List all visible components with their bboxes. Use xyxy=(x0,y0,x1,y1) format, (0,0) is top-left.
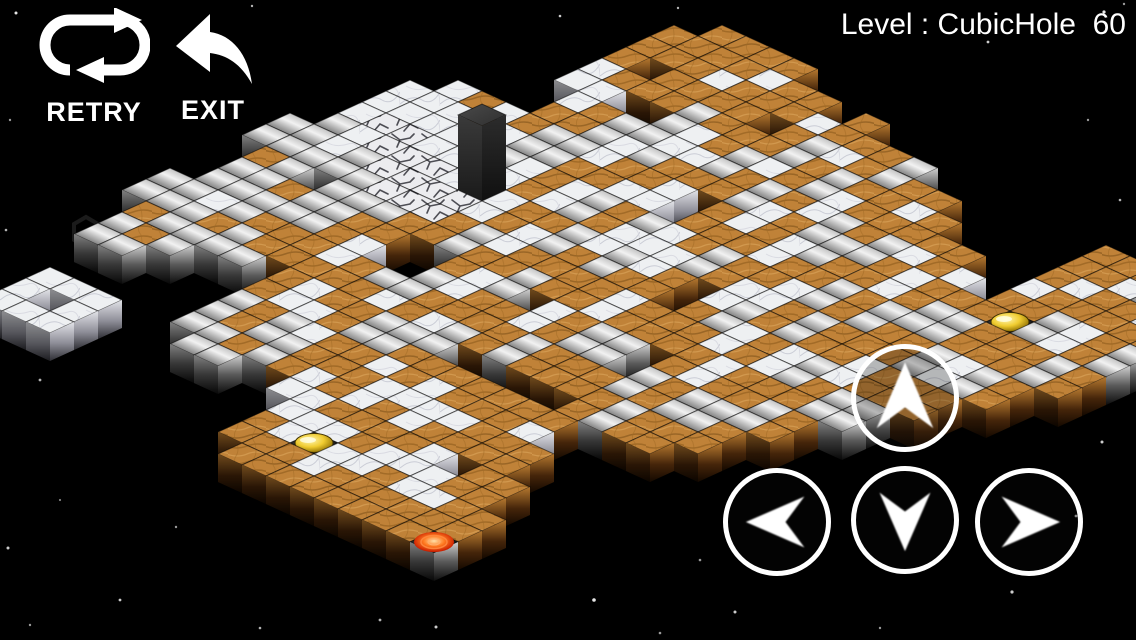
retry-button[interactable]: RETRY xyxy=(38,8,150,128)
retry-label: RETRY xyxy=(38,97,150,128)
dpad-left-button[interactable] xyxy=(723,468,831,576)
dpad-up-button[interactable] xyxy=(851,344,959,452)
dpad-down-button[interactable] xyxy=(851,466,959,574)
level-label: Level : CubicHole 60 xyxy=(841,8,1126,42)
exit-button[interactable]: EXIT xyxy=(168,12,258,126)
retry-loop-icon xyxy=(38,8,150,92)
arrow-right-icon xyxy=(980,473,1078,571)
game-screen: RETRY EXIT Level : CubicHole 60 xyxy=(0,0,1136,640)
exit-label: EXIT xyxy=(168,95,258,126)
arrow-up-icon xyxy=(856,349,954,447)
arrow-down-icon xyxy=(856,471,954,569)
dpad-right-button[interactable] xyxy=(975,468,1083,576)
arrow-left-icon xyxy=(728,473,826,571)
exit-back-arrow-icon xyxy=(168,12,258,90)
